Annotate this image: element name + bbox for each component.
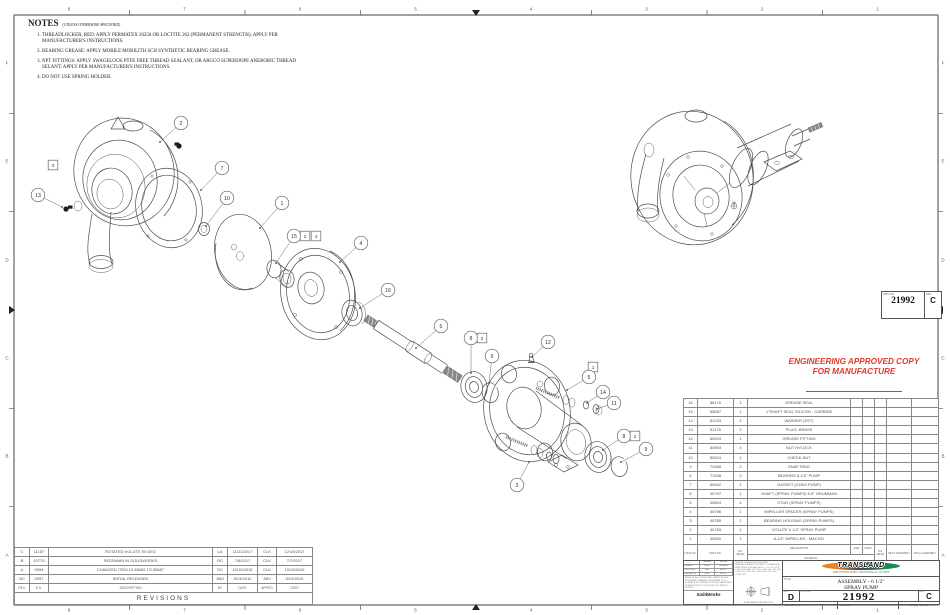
revision-cell: 10/19/2016 [228, 566, 258, 575]
revision-cell: 11187 [30, 548, 49, 557]
bom-cell: SHAFT (SPRAY PUMPS) 6.5" GRUMMAN [748, 489, 851, 498]
bom-cell [851, 508, 863, 517]
bearing-housing-part [474, 352, 594, 472]
bom-cell [863, 517, 875, 526]
leader-dot [415, 347, 417, 349]
bom-cell [851, 453, 863, 462]
bom-cell [863, 526, 875, 535]
bom-cell: 1 [684, 535, 698, 544]
bom-row: 4407861IMPELLER SPACER (SPRAY PUMPS) [684, 508, 939, 517]
bom-cell [912, 508, 939, 517]
zone-label: 5 [414, 608, 417, 613]
bom-cell: 2 [734, 426, 748, 435]
bom-cell [851, 480, 863, 489]
drawing-sheet: { "accent_red": "#e2392c", "notes": { "h… [0, 0, 950, 615]
bom-cell [875, 399, 887, 408]
bom-cell [912, 399, 939, 408]
bom-cell: 80563 [698, 444, 734, 453]
revision-cell: 10/19/2016 [277, 566, 313, 575]
bom-cell: 40785 [698, 517, 734, 526]
bom-cell: 11 [684, 444, 698, 453]
revision-cell: 10770 [30, 557, 49, 566]
bom-cell [851, 499, 863, 508]
leader-dot [259, 227, 261, 229]
balloon-number: 3 [516, 483, 519, 489]
bom-cell: NUT NYLOCK [748, 444, 851, 453]
bom-row: 11805634NUT NYLOCK [684, 444, 939, 453]
bom-cell: 4 [734, 417, 748, 426]
title-line1: ASSEMBLY - 6 1/2" [783, 577, 939, 585]
spacer-part [272, 241, 364, 346]
zone-label: 6 [299, 608, 302, 613]
notes-heading: NOTES [28, 18, 59, 28]
revision-cell: ROTATED VOLUTE 90 DEG [49, 548, 213, 557]
revision-cell: JMV [213, 575, 228, 584]
bom-row: 10805241CHECK NUT [684, 453, 939, 462]
zone-label: 4 [530, 608, 533, 613]
projection-symbol: THIRD ANGLE PROJECTION [734, 584, 782, 604]
balloon-number: 8 [470, 336, 473, 342]
dwg-ref-box: DWG NO 21992 REV C [881, 291, 942, 319]
bom-cell [887, 417, 912, 426]
bom-cell: WASHER (SST) [748, 417, 851, 426]
balloon-number: 5 [588, 375, 591, 381]
bom-row: 7606621GASKET (21363 PUMP) [684, 480, 939, 489]
bom-cell: 1 [734, 517, 748, 526]
bom-cell [912, 535, 939, 544]
bom-cell: 3 [684, 517, 698, 526]
bom-cell [887, 426, 912, 435]
bom-cell: IMPELLER SPACER (SPRAY PUMPS) [748, 508, 851, 517]
balloon-number: 8 [623, 434, 626, 440]
fine-print: REMOVE ALL BURRS AND SHARP EDGES. INTERP… [684, 576, 733, 591]
revision-cell: CLK [258, 566, 277, 575]
bom-cell [875, 471, 887, 480]
zone-label: 5 [414, 7, 417, 12]
bom-cell: 4 [734, 499, 748, 508]
revision-cell: CLK [258, 548, 277, 557]
engappr-date: 4/7/17 [715, 573, 733, 577]
note-item: BEARING GREASE: APPLY MOBILE MOBILITH SC… [42, 49, 298, 55]
bom-cell: 13 [684, 426, 698, 435]
note-item: NPT FITTINGS: APPLY SWAGELOCK PTFE FREE … [42, 59, 298, 71]
bom-cell [887, 435, 912, 444]
notes-qualifier: (UNLESS OTHERWISE SPECIFIED) [63, 23, 121, 27]
exploded-view [63, 109, 629, 478]
bom-cell: 5 [684, 499, 698, 508]
balloon-number: 1 [281, 201, 284, 207]
bom-row: 3407851BEARING HOUSING (SPRAY PUMPS) [684, 517, 939, 526]
revision-cell: 5/13/2010 [277, 575, 313, 584]
transland-logo: TRANSLAND [822, 562, 900, 570]
revision-cell: 7/6/2017 [228, 557, 258, 566]
bom-cell: 40786 [698, 508, 734, 517]
bom-cell: BEARING HOUSING (SPRAY PUMPS) [748, 517, 851, 526]
bom-cell [912, 471, 939, 480]
bom-cell [863, 462, 875, 471]
bom-cell [875, 489, 887, 498]
revision-cell: 7/7/2017 [277, 557, 313, 566]
bom-cell: 40797 [698, 489, 734, 498]
bom-cell: 2 [734, 471, 748, 480]
balloon-number: 15 [291, 234, 297, 240]
zone-label: 2 [761, 608, 764, 613]
bom-cell [912, 526, 939, 535]
engappr-label: ENG APPR. [684, 573, 700, 577]
bom-cell [875, 508, 887, 517]
bom-row: 9745682SNAP RING [684, 462, 939, 471]
revision-row: B10770REDRAWN IN SOLIDWORKSRC7/6/2017CLK… [15, 557, 313, 566]
approvals-grid: NAME DATE DRAWN ZMV 5/13/10 CHECKED RB 4… [684, 561, 733, 576]
zone-label: 2 [761, 7, 764, 12]
bom-cell: 40804 [698, 499, 734, 508]
bom-cell: GREASE FITTING [748, 435, 851, 444]
size-cell: SIZE D [783, 591, 800, 602]
bom-cell: 1 [734, 535, 748, 544]
balloon-number: 4 [360, 241, 363, 247]
bom-cell: 14 [684, 417, 698, 426]
leader-dot [200, 189, 202, 191]
bom-cell [863, 399, 875, 408]
bom-row: 12806031GREASE FITTING [684, 435, 939, 444]
company-address: 1206 HATTON ROAD, WICHITA FALLS, TX 7630… [783, 571, 939, 574]
bom-cell [863, 435, 875, 444]
revisions-title: REVISIONS [15, 593, 313, 605]
shaft-part [363, 313, 463, 384]
bom-cell [912, 417, 939, 426]
bom-cell [875, 480, 887, 489]
zone-label: 6 [299, 7, 302, 12]
revision-cell: B [15, 557, 30, 566]
bom-cell [863, 499, 875, 508]
balloon-number: 3 [52, 163, 55, 168]
zone-label: D [5, 257, 8, 262]
size-value: D [783, 592, 799, 602]
title-section: TRANSLAND 1206 HATTON ROAD, WICHITA FALL… [783, 561, 939, 604]
bom-cell [887, 471, 912, 480]
bom-cell [851, 426, 863, 435]
bom-cell [863, 453, 875, 462]
drawing-title: TITLE: ASSEMBLY - 6 1/2" SPRAY PUMP [783, 577, 939, 591]
bom-row: 8715482BEARING 6-1/2" PUMP [684, 471, 939, 480]
bom-cell [887, 444, 912, 453]
leader-dot [339, 261, 341, 263]
revision-cell: NC [15, 575, 30, 584]
title-block: NAME DATE DRAWN ZMV 5/13/10 CHECKED RB 4… [683, 560, 940, 605]
bom-cell [875, 526, 887, 535]
model-label: MODEL: [838, 602, 899, 609]
balloon-number: 6 [440, 324, 443, 330]
revision-cell: C [15, 548, 30, 557]
bom-cell: 71548 [698, 471, 734, 480]
bom-cell: SNAP RING [748, 462, 851, 471]
bom-cell: 1 [734, 435, 748, 444]
bom-cell [863, 508, 875, 517]
bom-cell [863, 480, 875, 489]
bom-cell: 1 [734, 526, 748, 535]
snap-ring-part-rear [609, 455, 629, 478]
bom-cell [863, 417, 875, 426]
bom-cell: CHECK NUT [748, 453, 851, 462]
bom-cell: 6 [684, 489, 698, 498]
bom-row: 6407971SHAFT (SPRAY PUMPS) 6.5" GRUMMAN [684, 489, 939, 498]
scale-value: SCALE: NTS [783, 602, 838, 609]
balloon-number: 4 [315, 234, 318, 239]
bom-cell [912, 462, 939, 471]
bom-col-size: SIZE [851, 544, 863, 554]
bom-cell [851, 417, 863, 426]
bom-cell [912, 426, 939, 435]
zone-label: F [942, 61, 945, 66]
bom-cell [863, 426, 875, 435]
approval-stamp: ENGINEERING APPROVED COPY FOR MANUFACTUR… [762, 357, 946, 392]
revisions-body: C11187ROTATED VOLUTE 90 DEGLA11/21/2017C… [15, 548, 313, 584]
bom-cell [912, 489, 939, 498]
bom-cell: 40783 [698, 526, 734, 535]
balloon-number: 7 [221, 166, 224, 172]
zone-label: 8 [68, 608, 71, 613]
bom-cell [851, 408, 863, 417]
rev-label: REV [920, 591, 925, 593]
company-block: TRANSLAND 1206 HATTON ROAD, WICHITA FALL… [783, 562, 939, 577]
bom-cell [887, 408, 912, 417]
bom-cell [875, 453, 887, 462]
zone-label: B [5, 454, 8, 459]
bom-cell: 16 [684, 399, 698, 408]
bom-cell: 45500 [698, 535, 734, 544]
zone-label: C [5, 355, 8, 360]
bom-row: 14550016-1/2" IMPELLER - MACH'D [684, 535, 939, 544]
leader-dot [470, 372, 472, 374]
leader-dot [488, 382, 490, 384]
leader-dot [205, 225, 207, 227]
revision-cell: LA [213, 548, 228, 557]
parts-list: 16861761GREASE SEAL158568711"SHAFT SEAL … [683, 398, 938, 565]
bom-cell [912, 453, 939, 462]
bom-cell: VOLUTE 6 1/2" SPRAY PUMP [748, 526, 851, 535]
bom-cell: 86176 [698, 399, 734, 408]
dwg-number: 21992 [800, 591, 918, 603]
bom-cell [887, 453, 912, 462]
revision-cell: 9394 [30, 566, 49, 575]
zone-label: E [5, 159, 8, 164]
zone-label: 1 [876, 7, 879, 12]
bom-cell [863, 444, 875, 453]
bom-cell: 85687 [698, 408, 734, 417]
revision-cell: CHANGED ITEM 15 85689 TO 85687 [49, 566, 213, 575]
bom-row: 14812334WASHER (SST) [684, 417, 939, 426]
revisions-table: C11187ROTATED VOLUTE 90 DEGLA11/21/2017C… [14, 547, 313, 605]
balloon-number: 10 [224, 196, 230, 202]
zone-label: F [6, 61, 9, 66]
bom-cell: 1 [734, 453, 748, 462]
bom-cell: 7 [684, 480, 698, 489]
sheet-label: SHEET 1 OF 1 [899, 602, 939, 609]
balloon-number: 16 [385, 288, 391, 294]
bom-cell [863, 408, 875, 417]
stamp-line2: FOR MANUFACTURE [762, 367, 946, 377]
seal-ring-part [340, 298, 366, 328]
balloon-number: 11 [611, 401, 616, 407]
bom-cell [875, 417, 887, 426]
tolerance-section: UNLESS OTHERWISE SPECIFIED DIMENSIONS AR… [734, 561, 783, 604]
bom-cell [851, 471, 863, 480]
bom-cell: 80524 [698, 453, 734, 462]
zone-label: B [941, 454, 944, 459]
bom-cell [912, 517, 939, 526]
bom-cell: 1 [734, 489, 748, 498]
ref-dwg-number: 21992 [882, 296, 924, 306]
bom-cell: 1"SHAFT SEAL SILICON - CARBIDE [748, 408, 851, 417]
bom-cell [887, 517, 912, 526]
title-label: TITLE: [784, 578, 791, 581]
bom-cell [875, 535, 887, 544]
zone-label: 7 [183, 7, 186, 12]
dwg-number-cell: DWG. NO. 21992 [800, 591, 919, 602]
bom-table: 16861761GREASE SEAL158568711"SHAFT SEAL … [683, 398, 939, 565]
bom-cell [851, 535, 863, 544]
bom-cell: 4 [684, 508, 698, 517]
bom-cell: 1 [734, 480, 748, 489]
bom-cell [887, 526, 912, 535]
bom-cell [875, 517, 887, 526]
bom-cell [912, 499, 939, 508]
bom-cell: 1 [734, 399, 748, 408]
bom-cell: 6-1/2" IMPELLER - MACH'D [748, 535, 851, 544]
bom-cell [887, 462, 912, 471]
leader-dot [602, 449, 604, 451]
revision-cell: INITIAL RELEASED [49, 575, 213, 584]
company-name: TRANSLAND [822, 562, 900, 569]
zone-label: A [941, 552, 944, 557]
revision-cell: A [15, 566, 30, 575]
note-item: THREADLOCKER, RED: APPLY PERMATEX 26250 … [42, 33, 298, 45]
stud-set-lower [506, 437, 559, 464]
bom-cell: GREASE SEAL [748, 399, 851, 408]
bom-cell [875, 444, 887, 453]
zone-label: 4 [530, 7, 533, 12]
bom-cell [912, 480, 939, 489]
leader-dot [359, 307, 361, 309]
leader-dot [159, 141, 161, 143]
bom-cell: PLUG, BRASS [748, 426, 851, 435]
note-item: DO NOT USE SPRING HOLDER. [42, 75, 298, 81]
bom-cell: 2 [684, 526, 698, 535]
bom-cell [912, 435, 939, 444]
bom-cell: 8 [684, 471, 698, 480]
bom-cell: 2 [734, 462, 748, 471]
bom-cell [851, 526, 863, 535]
bom-cell: 74568 [698, 462, 734, 471]
balloon-number: 2 [634, 434, 637, 439]
projection-label: THIRD ANGLE PROJECTION [734, 602, 782, 604]
leader-dot [61, 206, 63, 208]
notes-list: THREADLOCKER, RED: APPLY PERMATEX 26250 … [28, 33, 298, 81]
revisions-header-row: REV. E.O. DESCRIPTION BY DATE APPR'D DAT… [15, 584, 313, 593]
bom-cell [875, 499, 887, 508]
zone-label: 3 [645, 7, 648, 12]
bom-col-spec: SPEC. [863, 544, 875, 554]
revision-row: A9394CHANGED ITEM 15 85689 TO 85687RC10/… [15, 566, 313, 575]
bom-col-desc: DESCRIPTION [748, 544, 851, 554]
revision-row: NC0097INITIAL RELEASEDJMV5/13/2010JMV5/1… [15, 575, 313, 584]
zone-label: E [941, 159, 944, 164]
revision-cell: 12/15/2017 [277, 548, 313, 557]
bom-cell: 80603 [698, 435, 734, 444]
revisions-block: C11187ROTATED VOLUTE 90 DEGLA11/21/2017C… [14, 547, 312, 605]
stamp-underline [806, 391, 902, 392]
balloon-number: 12 [545, 340, 551, 346]
balloon-number: 13 [35, 193, 41, 199]
bom-row: 13811752PLUG, BRASS [684, 426, 939, 435]
revision-cell: 5/13/2010 [228, 575, 258, 584]
bom-cell [875, 408, 887, 417]
bom-cell [851, 444, 863, 453]
bom-row: 158568711"SHAFT SEAL SILICON - CARBIDE [684, 408, 939, 417]
bom-cell: 1 [734, 408, 748, 417]
leader-dot [531, 356, 533, 358]
check-nut-part [199, 223, 210, 236]
ref-rev-value: C [925, 296, 941, 305]
stud-set-upper [536, 388, 602, 415]
tolerance-text: UNLESS OTHERWISE SPECIFIED DIMENSIONS AR… [734, 561, 782, 584]
engappr-name: CLK [700, 573, 715, 577]
bom-cell [851, 517, 863, 526]
zone-label: A [5, 552, 8, 557]
bom-cell [851, 435, 863, 444]
bom-row: 16861761GREASE SEAL [684, 399, 939, 408]
zone-label: C [941, 355, 944, 360]
bom-cell [851, 489, 863, 498]
bom-cell [875, 426, 887, 435]
leader-dot [275, 262, 277, 264]
bom-cell [887, 399, 912, 408]
bom-cell: 12 [684, 435, 698, 444]
bom-cell: 1 [734, 508, 748, 517]
bom-cell [887, 535, 912, 544]
zone-label: D [941, 257, 944, 262]
bom-cell [887, 508, 912, 517]
bom-cell [887, 480, 912, 489]
leader-dot [528, 461, 530, 463]
bom-cell [912, 444, 939, 453]
revision-cell: JMV [258, 575, 277, 584]
bom-body: 16861761GREASE SEAL158568711"SHAFT SEAL … [684, 399, 939, 545]
bom-cell: 81175 [698, 426, 734, 435]
leader-dot [586, 402, 588, 404]
balloon-number: 1 [592, 365, 595, 370]
rev-value: C [919, 592, 939, 601]
leader-dot [620, 461, 622, 463]
solidworks-label: SolidWorks [684, 591, 733, 597]
assembled-view [620, 101, 823, 254]
approvals-section: NAME DATE DRAWN ZMV 5/13/10 CHECKED RB 4… [684, 561, 734, 604]
bom-cell [863, 535, 875, 544]
bom-cell [875, 462, 887, 471]
bom-cell [863, 471, 875, 480]
bom-row: 2407831VOLUTE 6 1/2" SPRAY PUMP [684, 526, 939, 535]
bom-cell: 60662 [698, 480, 734, 489]
third-angle-icon [743, 586, 773, 597]
revision-cell: RC [213, 566, 228, 575]
revision-cell: CLK [258, 557, 277, 566]
balloon-number: 9 [491, 354, 494, 360]
leader-dot [566, 389, 568, 391]
balloon-number: 2 [180, 121, 183, 127]
gasket-part [128, 162, 209, 254]
bom-cell [875, 435, 887, 444]
bom-cell [851, 399, 863, 408]
